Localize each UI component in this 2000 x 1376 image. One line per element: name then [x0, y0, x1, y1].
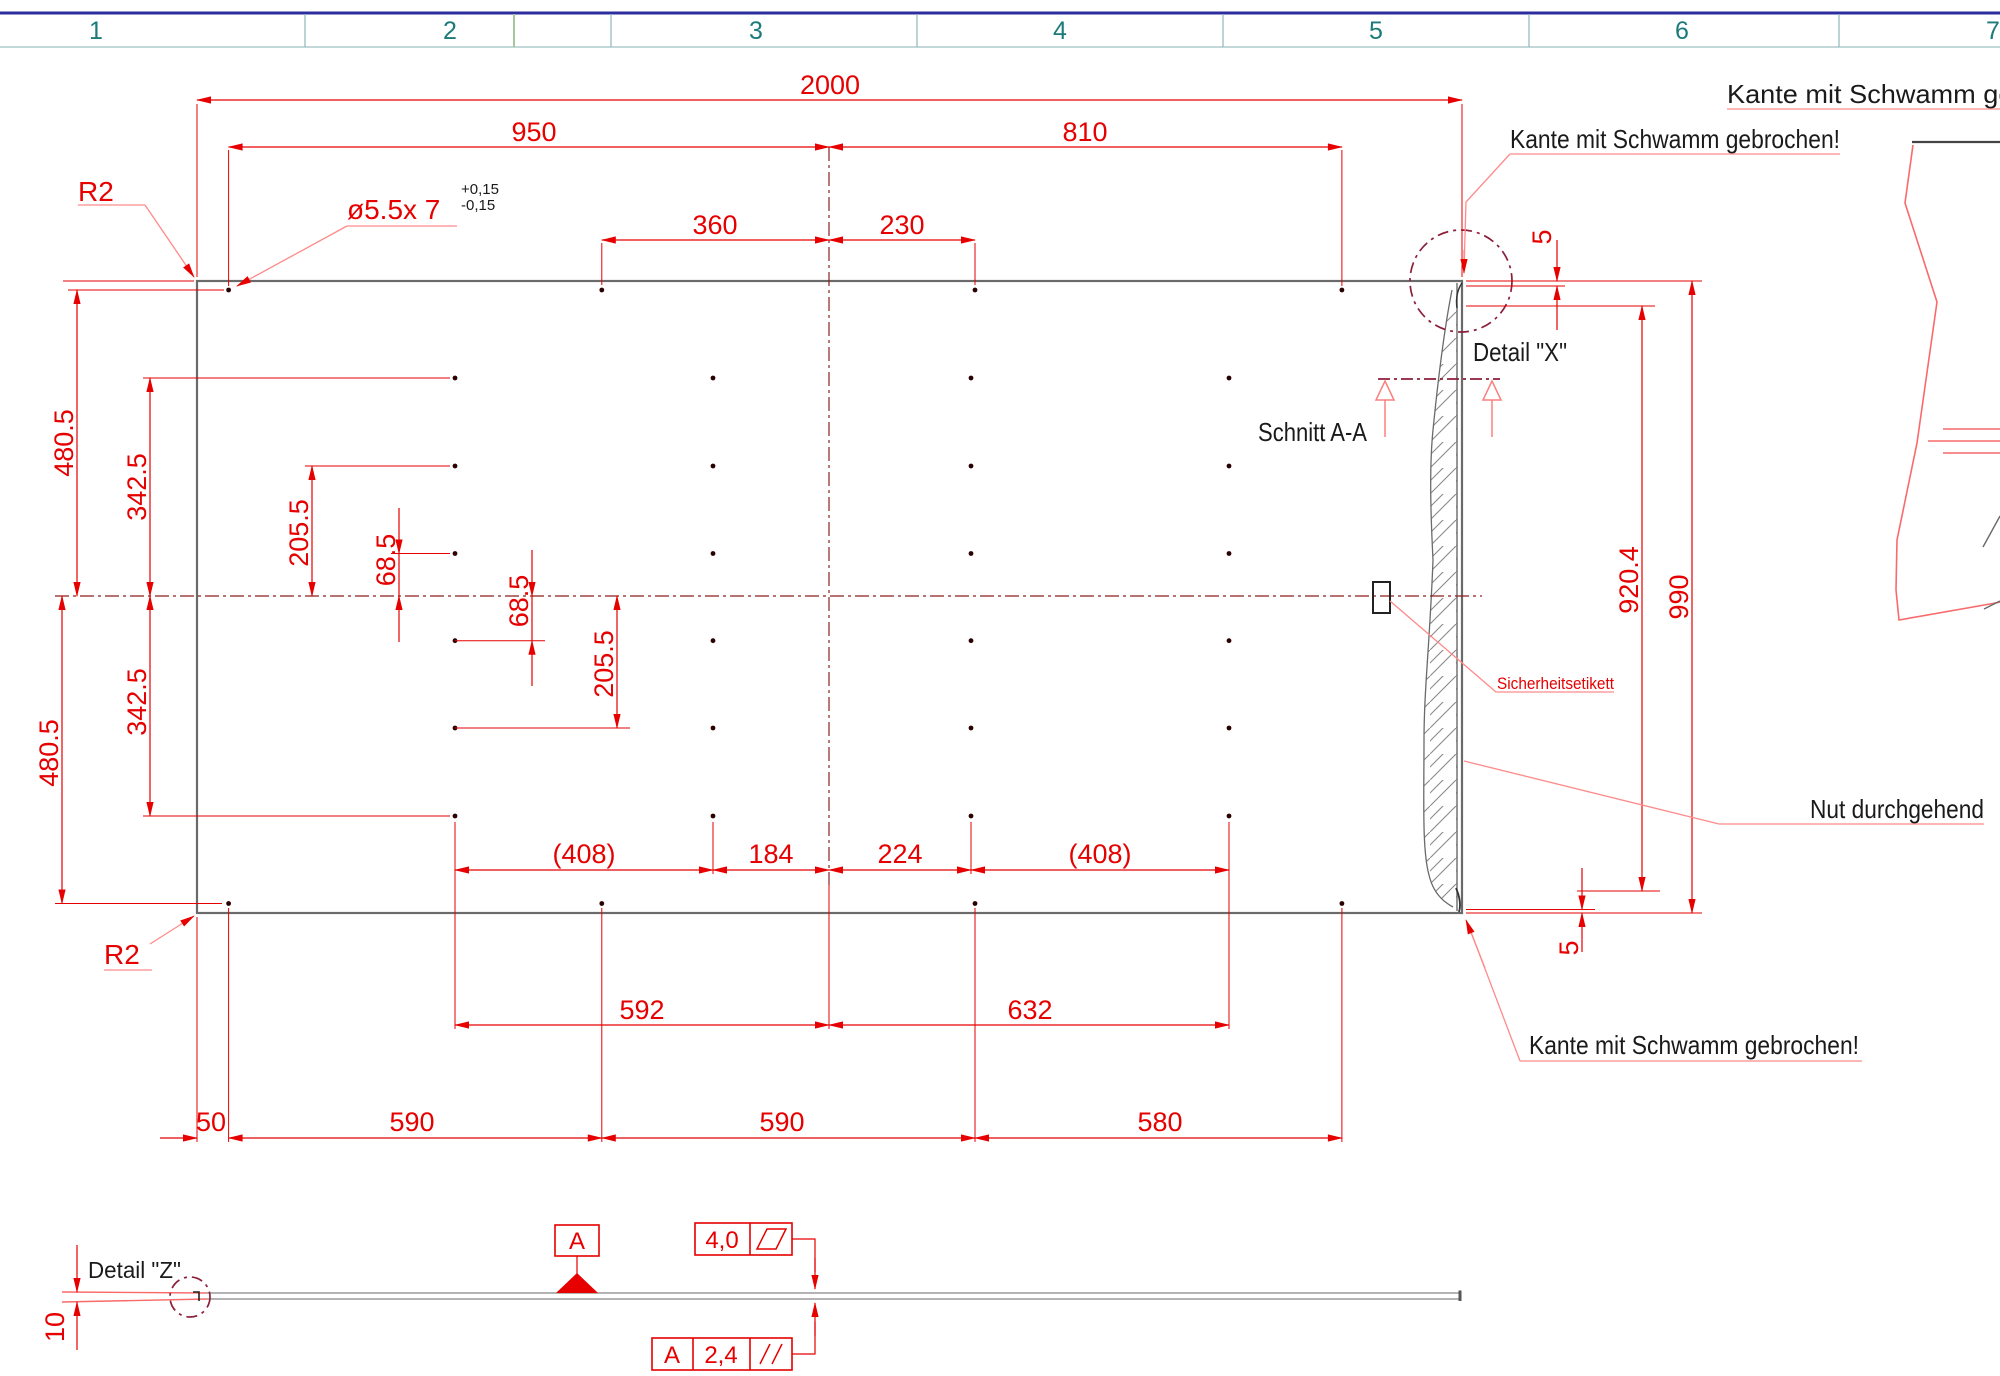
detail-z-circle	[170, 1277, 210, 1317]
dim-text-580: 580	[1137, 1107, 1182, 1137]
datum-a-letter: A	[569, 1228, 585, 1255]
zone-number-1: 1	[89, 17, 103, 45]
dim-text-10: 10	[40, 1312, 70, 1342]
dim-text-480.5-lower: 480.5	[34, 719, 64, 787]
dim-text-224: 224	[877, 839, 922, 869]
dim-text-5-bottom: 5	[1554, 940, 1584, 955]
side-view-strip: Detail "Z" 10 A 4,0 A 2,4	[40, 1223, 1460, 1370]
dim-text-810: 810	[1062, 117, 1107, 147]
dim-text-5-top: 5	[1527, 229, 1557, 244]
dim-text-590a: 590	[389, 1107, 434, 1137]
zone-number-4: 4	[1053, 17, 1067, 45]
zone-number-5: 5	[1369, 17, 1383, 45]
dim-810: 810	[829, 117, 1342, 286]
datum-a-flag: A	[555, 1225, 599, 1293]
dim-text-632: 632	[1007, 995, 1052, 1025]
detail-z-label: Detail "Z"	[88, 1257, 181, 1283]
dim-text-2000: 2000	[800, 70, 860, 100]
tolerance-plus: +0,15	[461, 181, 499, 198]
hole-callout: ø5.5x 7 +0,15 -0,15	[237, 181, 499, 286]
r2-top-text: R2	[78, 176, 114, 207]
dim-950: 950	[229, 117, 829, 286]
zone-number-6: 6	[1675, 17, 1689, 45]
dim-text-205.5-lower: 205.5	[589, 630, 619, 698]
kante-label-corner: Kante mit Schwamm gebrochen!	[1510, 124, 1840, 154]
kante-label-top-right: Kante mit Schwamm gebrochen!	[1727, 79, 2000, 109]
detail-x-label: Detail "X"	[1473, 337, 1567, 367]
surface-bottom-datum: A	[664, 1342, 680, 1369]
schnitt-label: Schnitt A-A	[1258, 417, 1368, 447]
dim-text-205.5-upper: 205.5	[284, 499, 314, 567]
detail-x-view	[1896, 142, 2000, 620]
dim-text-592: 592	[619, 995, 664, 1025]
section-arrow-right-icon	[1483, 381, 1501, 400]
dim-text-342.5-lower: 342.5	[122, 668, 152, 736]
nut-label: Nut durchgehend	[1810, 794, 1984, 824]
drawing-canvas: 1 2 3 4 5 6 7	[0, 0, 2000, 1376]
dim-text-590b: 590	[759, 1107, 804, 1137]
zone-number-7: 7	[1986, 17, 2000, 45]
detail-profile-line	[1896, 145, 2000, 620]
dim-text-230: 230	[879, 210, 924, 240]
parallelogram-symbol-icon	[757, 1229, 786, 1249]
zone-number-2: 2	[443, 17, 457, 45]
sicherheitsetikett-label: Sicherheitsetikett	[1497, 674, 1614, 693]
surface-flag-bottom: A 2,4	[652, 1303, 815, 1370]
dim-text-50: 50	[196, 1107, 226, 1137]
dim-230: 230	[829, 210, 975, 285]
plate-top-view	[55, 147, 1512, 913]
dim-text-184: 184	[748, 839, 793, 869]
dim-text-360: 360	[692, 210, 737, 240]
datum-triangle-icon	[556, 1273, 598, 1293]
dim-360: 360	[602, 210, 829, 285]
tolerance-minus: -0,15	[461, 197, 495, 214]
radius-callout-top: R2	[78, 176, 194, 277]
zone-number-3: 3	[749, 17, 763, 45]
surface-bottom-value: 2,4	[704, 1342, 737, 1369]
slash-symbol-icon	[760, 1344, 770, 1364]
ruler-band	[0, 14, 2000, 47]
dim-text-920.4: 920.4	[1614, 546, 1644, 614]
dim-text-950: 950	[511, 117, 556, 147]
dim-text-480.5-upper: 480.5	[49, 409, 79, 477]
zone-ruler: 1 2 3 4 5 6 7	[0, 13, 2000, 47]
dim-text-408a: (408)	[552, 839, 615, 869]
radius-callout-bottom: R2	[104, 916, 194, 970]
surface-top-value: 4,0	[705, 1227, 738, 1254]
dim-text-408b: (408)	[1068, 839, 1131, 869]
hole-callout-text: ø5.5x 7	[347, 194, 440, 225]
cad-drawing-sheet: 1 2 3 4 5 6 7	[0, 0, 2000, 1376]
dim-text-68.5-lower: 68.5	[504, 575, 534, 628]
dim-text-990: 990	[1664, 574, 1694, 619]
kante-label-bottom: Kante mit Schwamm gebrochen!	[1529, 1030, 1859, 1060]
dim-text-68.5-upper: 68.5	[371, 534, 401, 587]
r2-bottom-text: R2	[104, 939, 140, 970]
surface-flag-top: 4,0	[695, 1223, 815, 1289]
dim-text-342.5-upper: 342.5	[122, 453, 152, 521]
